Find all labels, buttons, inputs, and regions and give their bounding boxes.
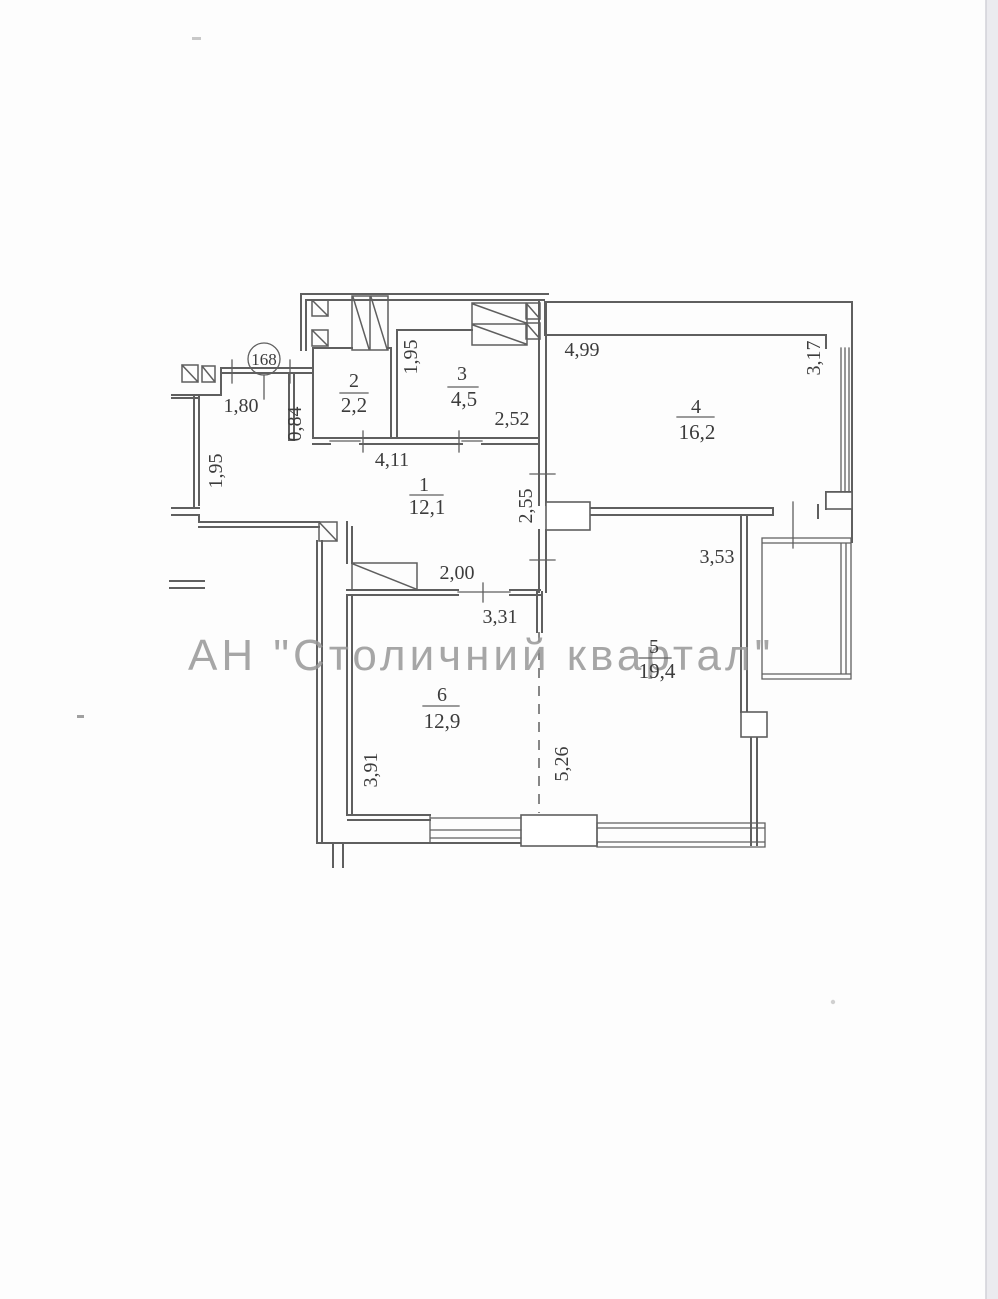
balcony-walls: [762, 538, 851, 679]
scanned-floor-plan-page: 168 АН "Столичний квартал" 1,80 0,84 1,9…: [0, 0, 998, 1299]
room-number: 6: [437, 684, 447, 706]
outer-walls: [170, 294, 852, 867]
room-area: 4,5: [451, 387, 477, 411]
room-number: 3: [457, 363, 467, 385]
dim-room5-depth: 5,26: [551, 747, 573, 782]
room-area: 16,2: [679, 420, 716, 444]
room-3-label: 3 4,5: [448, 363, 478, 411]
dimension-labels: 1,80 0,84 1,95 1,95 2,52 4,11 4,99 3,17 …: [205, 339, 825, 788]
speck-top: [192, 37, 201, 40]
wall-block: [521, 815, 597, 846]
room-area: 2,2: [341, 393, 367, 417]
dim-room3-width: 2,52: [495, 408, 530, 430]
apartment-number-marker: 168: [248, 343, 280, 399]
room-area: 12,9: [424, 709, 461, 733]
room-1-label: 1 12,1: [409, 474, 446, 519]
dim-room5-width: 3,53: [700, 546, 735, 568]
room-number: 1: [419, 474, 429, 496]
window-lines: [430, 348, 849, 843]
room-number: 4: [691, 396, 701, 418]
room-number: 5: [649, 636, 659, 658]
dim-room6-opening: 2,00: [440, 562, 475, 584]
wall-block: [741, 712, 767, 737]
speck-right: [831, 1000, 835, 1004]
room-4-label: 4 16,2: [677, 396, 715, 444]
dim-entry-wall: 0,84: [284, 407, 306, 442]
room-number: 2: [349, 370, 359, 392]
dim-hall-room5-wall: 2,55: [515, 489, 537, 524]
room-2-label: 2 2,2: [340, 370, 368, 417]
apartment-number: 168: [251, 350, 277, 369]
dim-hall-left-depth: 1,95: [205, 454, 227, 489]
wall-block: [546, 502, 590, 530]
dim-room3-left-depth: 1,95: [400, 340, 422, 375]
dim-room6-depth: 3,91: [360, 753, 382, 788]
floor-plan-svg: 168 АН "Столичний квартал" 1,80 0,84 1,9…: [0, 0, 998, 1299]
room-area: 12,1: [409, 495, 446, 519]
lower-balcony-parapet: [597, 823, 765, 847]
dim-room4-depth: 3,17: [803, 341, 825, 376]
wall-block: [826, 492, 852, 509]
room-6-label: 6 12,9: [423, 684, 460, 733]
room-area: 19,4: [639, 659, 676, 683]
speck-left: [77, 715, 84, 718]
dim-room6-width: 3,31: [483, 606, 518, 628]
interior-walls: [199, 302, 818, 845]
agency-watermark: АН "Столичний квартал": [188, 631, 774, 680]
dim-hall-width: 4,11: [375, 449, 409, 471]
dim-room4-width: 4,99: [565, 339, 600, 361]
page-edge-shadow: [986, 0, 998, 1299]
dim-entry-width: 1,80: [224, 395, 259, 417]
